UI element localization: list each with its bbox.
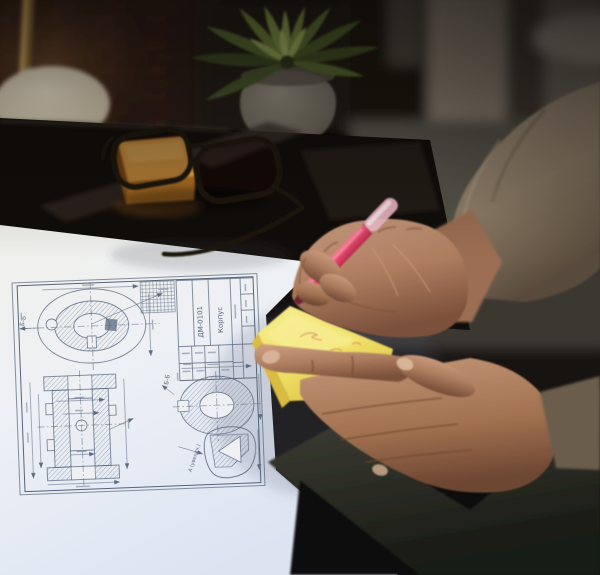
lighting-overlay [0,0,600,575]
photo-scene: ДМ-0101 Корпус [0,0,600,575]
scene-canvas: ДМ-0101 Корпус [0,0,600,575]
